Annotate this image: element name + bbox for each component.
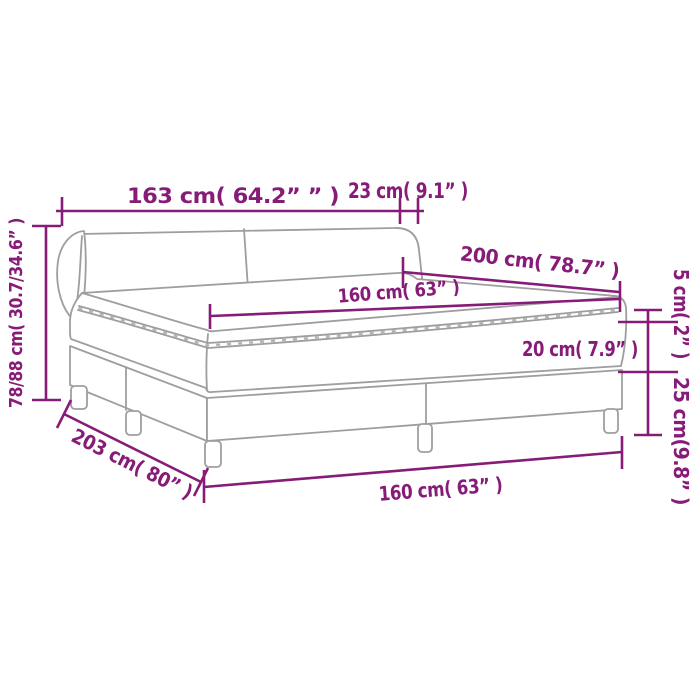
bed-leg-2 <box>126 411 141 435</box>
bed-dimension-diagram: 163 cm( 64.2” ” ) 23 cm( 9.1” ) 78/88 cm… <box>0 0 700 700</box>
bed-leg-4 <box>418 424 432 452</box>
dim-label-headboard-top-depth: 23 cm( 9.1” ) <box>348 179 468 203</box>
diagram-canvas: 163 cm( 64.2” ” ) 23 cm( 9.1” ) 78/88 cm… <box>0 0 700 700</box>
bed-leg-5 <box>604 409 618 433</box>
bed-leg-3 <box>205 441 221 467</box>
dim-label-headboard-width: 163 cm( 64.2” ” ) <box>127 184 339 208</box>
dim-label-base-width: 160 cm( 63” ) <box>378 472 504 506</box>
dim-tick <box>57 400 71 428</box>
bed-leg-1 <box>71 386 87 409</box>
dim-label-bed-length: 200 cm( 78.7” ) <box>459 241 621 282</box>
dim-label-topper-height: 5 cm( 2” ) <box>669 269 693 359</box>
dim-label-total-height: 78/88 cm( 30.7/34.6” ) <box>7 218 27 408</box>
dim-label-mattress-height: 20 cm( 7.9” ) <box>522 337 638 361</box>
dim-label-base-height: 25 cm(9.8” ) <box>669 377 693 505</box>
